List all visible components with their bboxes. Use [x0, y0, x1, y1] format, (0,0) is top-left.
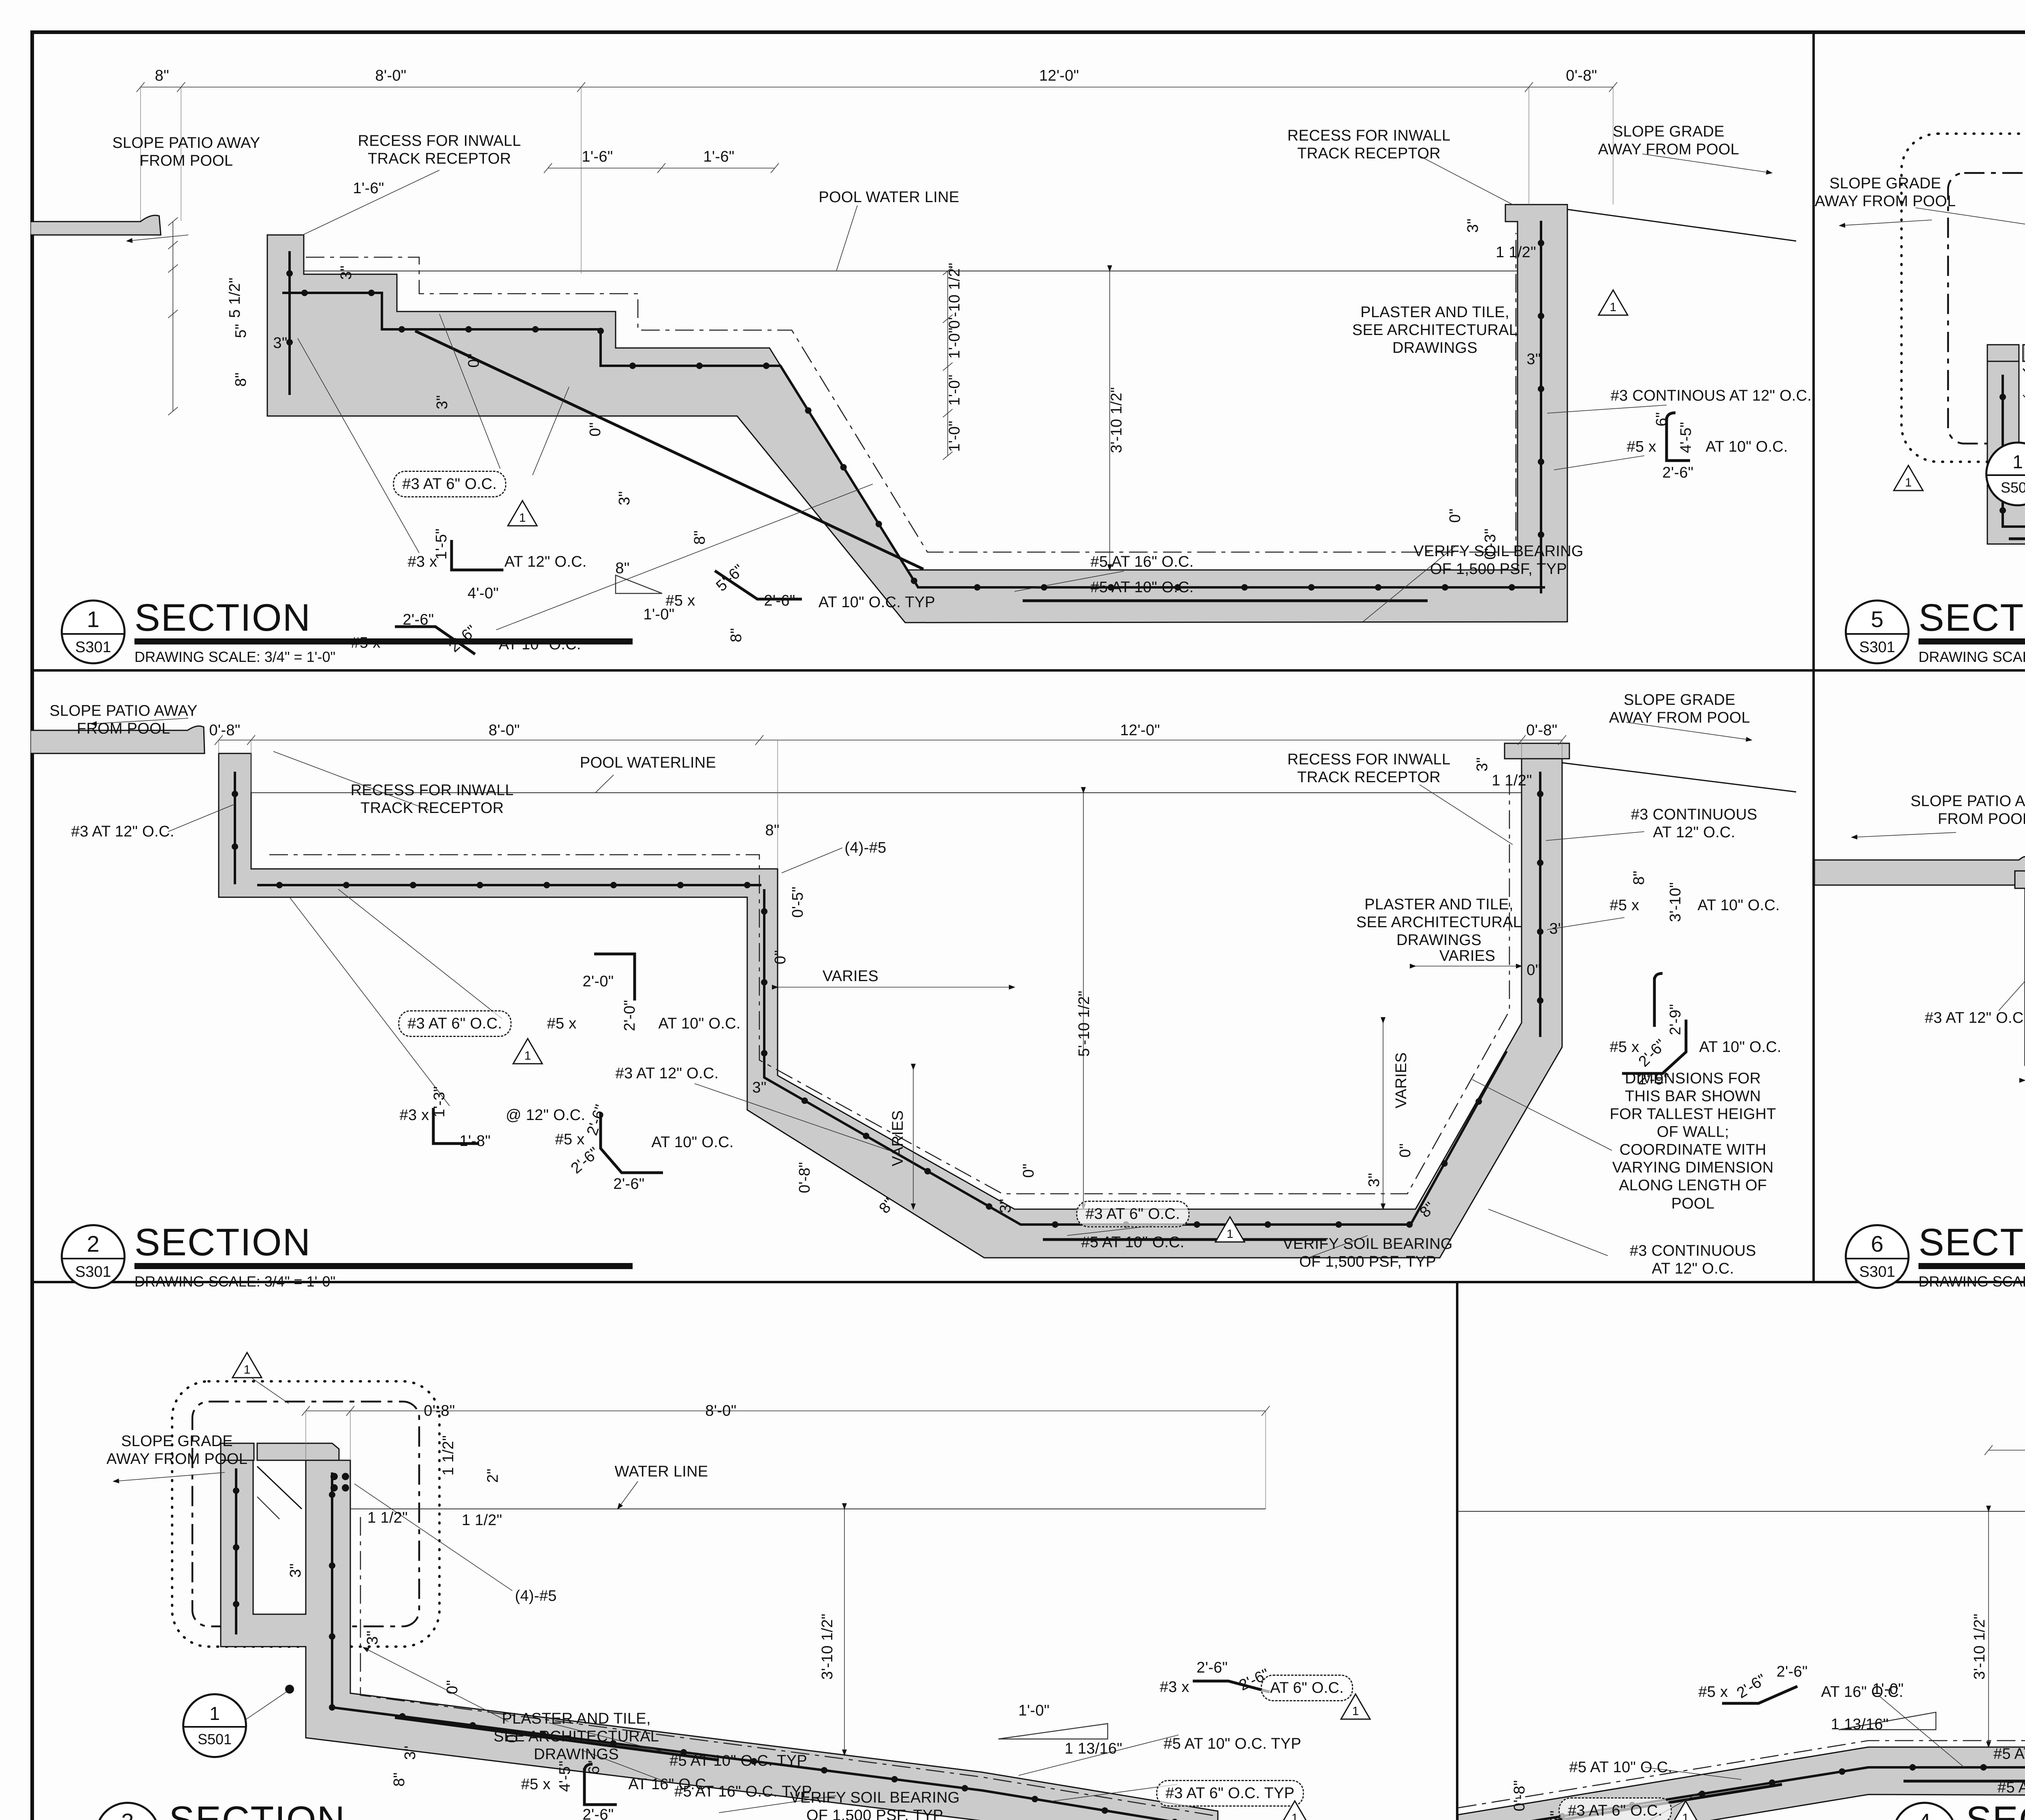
- svg-text:1: 1: [524, 1049, 531, 1063]
- section-scale: DRAWING SCALE: 3/4" = 1'-0": [1918, 1273, 2025, 1290]
- annotation-label: 8": [727, 628, 745, 642]
- annotation-label: 1 1/2": [1496, 243, 1536, 261]
- svg-text:1: 1: [1227, 1227, 1234, 1241]
- annotation-label: 4'-5": [556, 1760, 574, 1792]
- section-5-panel: SLOPE GRADE AWAY FROM POOLPLASTER AND TI…: [1814, 30, 2025, 670]
- annotation-label: 0'-3": [1481, 528, 1499, 559]
- annotation-label: 3": [616, 491, 633, 505]
- annotation-label: (4)-#5: [844, 839, 886, 857]
- annotation-label: 0'-8": [1526, 721, 1557, 739]
- section-title-text: SECTION: [1966, 1799, 2025, 1820]
- annotation-label: 3'-10": [1667, 882, 1684, 922]
- detail-callout: 1S501: [182, 1693, 247, 1758]
- annotation-label: 2'-6": [1196, 1659, 1228, 1677]
- svg-text:1: 1: [1682, 1811, 1689, 1820]
- annotation-label: 0": [1396, 1143, 1414, 1157]
- revision-triangle: 1: [1339, 1692, 1372, 1721]
- annotation-label: AT 10" O.C. TYP: [819, 593, 935, 611]
- annotation-label: #5 AT 10" O.C.: [1569, 1758, 1673, 1776]
- section-1-panel: SLOPE PATIO AWAY FROM POOLRECESS FOR INW…: [30, 30, 1796, 670]
- annotation-label: VARIES: [1392, 1052, 1410, 1108]
- annotation-label: POOL WATERLINE: [580, 754, 716, 772]
- annotation-label: AT 12" O.C.: [504, 553, 586, 571]
- svg-text:1: 1: [1292, 1811, 1298, 1820]
- annotation-label: #5 AT 10" O.C.: [1091, 578, 1194, 596]
- revision-triangle: 1: [231, 1351, 263, 1379]
- annotation-label: 2'-6": [567, 1144, 603, 1177]
- section-number: 1: [87, 608, 99, 631]
- annotation-label: #3 CONTINUOUS AT 12" O.C.: [1631, 806, 1757, 841]
- annotation-label: 1 1/2": [1492, 772, 1532, 789]
- annotation-label: 8": [765, 821, 779, 839]
- section-3-panel: SLOPE GRADE AWAY FROM POOL0'-8"8'-0"1 1/…: [30, 1282, 1458, 1820]
- annotation-label: 1 1/2": [439, 1435, 457, 1476]
- section-scale: DRAWING SCALE: 3/4" = 1'-0": [1918, 649, 2025, 666]
- annotation-label: RECESS FOR INWALL TRACK RECEPTOR: [1287, 751, 1451, 786]
- annotation-label: 8": [1416, 1199, 1439, 1221]
- annotation-label: #3 AT 12" O.C.: [1925, 1009, 2025, 1027]
- annotation-label: 0'-5": [789, 886, 807, 917]
- section-title-text: SECTION: [134, 1221, 311, 1264]
- svg-text:1: 1: [244, 1363, 251, 1376]
- annotation-label: 12'-0": [1039, 67, 1079, 85]
- annotation-label: 5 1/2": [226, 277, 244, 318]
- section-1-annotations: SLOPE PATIO AWAY FROM POOLRECESS FOR INW…: [30, 30, 1796, 670]
- annotation-label: RECESS FOR INWALL TRACK RECEPTOR: [351, 781, 514, 817]
- section-title-text: SECTION: [1918, 596, 2025, 639]
- annotation-label: VARIES: [1439, 947, 1495, 965]
- annotation-label: 3'-10 1/2": [1971, 1613, 1989, 1679]
- annotation-label: 2'-6": [764, 592, 795, 610]
- annotation-label: 12'-0": [1120, 721, 1160, 739]
- annotation-label: #3 x: [399, 1106, 429, 1124]
- annotation-label: 1'-0": [946, 327, 963, 358]
- annotation-label: #3 AT 6" O.C.: [1558, 1797, 1672, 1820]
- section-sheet: S301: [1859, 639, 1895, 656]
- section-4-titlebar: 4S301 SECTIONDRAWING SCALE: 3/4" = 1'-0": [1892, 1802, 2025, 1820]
- revision-triangle: 1: [512, 1037, 544, 1065]
- annotation-label: VARIES: [823, 967, 878, 985]
- section-title-text: SECTION: [169, 1799, 345, 1820]
- annotation-label: 3": [1526, 350, 1541, 368]
- annotation-label: 3'-10 1/2": [1108, 387, 1125, 453]
- annotation-label: VERIFY SOIL BEARING OF 1,500 PSF, TYP: [790, 1789, 960, 1820]
- annotation-label: 1'-8": [459, 1132, 490, 1150]
- annotation-label: 5'-6": [713, 561, 748, 595]
- annotation-label: 0'-8": [1566, 67, 1597, 85]
- annotation-label: PLASTER AND TILE, SEE ARCHITECTURAL DRAW…: [1356, 896, 1522, 949]
- annotation-label: 8": [1630, 871, 1648, 885]
- annotation-label: #3 AT 6" O.C.: [393, 471, 506, 497]
- annotation-label: #3 AT 6" O.C.: [1076, 1201, 1189, 1227]
- section-number: 5: [1871, 608, 1883, 631]
- annotation-label: AT 10" O.C.: [1705, 438, 1788, 456]
- svg-text:1: 1: [1352, 1705, 1359, 1718]
- annotation-label: 6": [1653, 412, 1671, 426]
- annotation-label: 1'-0": [1018, 1702, 1049, 1720]
- annotation-label: #3 AT 12" O.C.: [71, 823, 175, 841]
- annotation-label: 4'-5": [1677, 422, 1695, 453]
- annotation-label: SLOPE GRADE AWAY FROM POOL: [1598, 123, 1739, 158]
- annotation-label: #5 x: [1698, 1683, 1728, 1701]
- annotation-label: 3": [1365, 1173, 1383, 1187]
- drawing-sheet: SLOPE PATIO AWAY FROM POOLRECESS FOR INW…: [0, 0, 2025, 1820]
- annotation-label: 5'-10 1/2": [1075, 990, 1093, 1056]
- svg-text:1: 1: [1610, 301, 1617, 314]
- section-5-annotations: SLOPE GRADE AWAY FROM POOLPLASTER AND TI…: [1814, 30, 2025, 670]
- annotation-label: 1 13/16": [1065, 1740, 1123, 1758]
- annotation-label: #3 AT 6" O.C.: [398, 1010, 512, 1037]
- annotation-label: SLOPE GRADE AWAY FROM POOL: [1609, 691, 1750, 727]
- annotation-label: SLOPE GRADE AWAY FROM POOL: [1815, 175, 1956, 210]
- revision-triangle: 1: [1214, 1215, 1246, 1244]
- annotation-label: SLOPE PATIO AWAY FROM POOL: [112, 134, 260, 170]
- annotation-label: 2'-0": [582, 973, 614, 990]
- annotation-label: 0'-10 1/2": [946, 262, 963, 329]
- annotation-label: 2'-6": [1734, 1671, 1770, 1702]
- annotation-label: 1'-6": [582, 148, 613, 166]
- annotation-label: 3": [1549, 920, 1563, 938]
- annotation-label: #5 AT 16" O.C.: [1091, 553, 1194, 571]
- annotation-label: #5 AT 16" O.C. TYP: [1997, 1779, 2025, 1797]
- annotation-label: 3": [1473, 757, 1491, 771]
- annotation-label: 1'-6": [703, 148, 734, 166]
- section-sheet: S301: [75, 639, 111, 656]
- section-6-titlebar: 6S301 SECTIONDRAWING SCALE: 3/4" = 1'-0": [1845, 1224, 2025, 1290]
- annotation-label: 0": [586, 422, 604, 436]
- annotation-label: #5 x: [521, 1775, 550, 1793]
- annotation-label: #5 AT 10" O.C. TYP: [1164, 1735, 1301, 1753]
- annotation-label: 2'-6": [583, 1102, 610, 1137]
- annotation-label: 3": [337, 265, 355, 280]
- annotation-label: 0": [503, 1728, 521, 1743]
- annotation-label: 8": [390, 1772, 408, 1786]
- annotation-label: #5 x: [1626, 438, 1656, 456]
- section-number: 2: [87, 1233, 99, 1255]
- annotation-label: 3": [273, 334, 287, 352]
- annotation-label: AT 10" O.C.: [651, 1133, 733, 1151]
- annotation-label: 1'-5": [433, 528, 450, 559]
- annotation-label: 1'-0": [946, 374, 963, 405]
- annotation-label: #3 CONTINUOUS AT 12" O.C.: [1630, 1242, 1756, 1278]
- annotation-label: #5 AT 10" O.C. TYP: [669, 1752, 807, 1770]
- annotation-label: 8": [691, 530, 709, 544]
- annotation-label: POOL WATER LINE: [819, 188, 959, 206]
- annotation-label: #3 AT 12" O.C.: [616, 1065, 719, 1082]
- annotation-label: 1 13/16": [1831, 1715, 1889, 1733]
- section-title-text: SECTION: [1918, 1221, 2025, 1264]
- annotation-label: 2'-6": [1776, 1663, 1808, 1681]
- annotation-label: 3": [1547, 1810, 1565, 1820]
- annotation-label: 1'-0": [946, 420, 963, 452]
- annotation-label: 2'-6": [1635, 1036, 1670, 1071]
- section-2-titlebar: 2S301 SECTIONDRAWING SCALE: 3/4" = 1'-0": [61, 1224, 633, 1290]
- section-2-annotations: SLOPE PATIO AWAY FROM POOL0'-8"8'-0"12'-…: [30, 670, 1796, 1282]
- annotation-label: SLOPE PATIO AWAY FROM POOL: [1910, 792, 2025, 828]
- annotation-label: 3": [752, 1079, 766, 1097]
- annotation-label: 6": [585, 1760, 603, 1774]
- annotation-label: 2'-6": [1662, 464, 1693, 482]
- annotation-label: 1'-3": [431, 1086, 448, 1117]
- section-sheet: S301: [1859, 1263, 1895, 1281]
- annotation-label: 0'-8": [1511, 1780, 1528, 1811]
- annotation-label: SLOPE GRADE AWAY FROM POOL: [107, 1432, 247, 1468]
- annotation-label: 1 1/2": [462, 1511, 502, 1529]
- annotation-label: RECESS FOR INWALL TRACK RECEPTOR: [1287, 127, 1451, 162]
- annotation-label: 5": [232, 324, 250, 338]
- section-3-titlebar: 3S301 SECTIONDRAWING SCALE: 3/4" = 1'-0": [95, 1802, 667, 1820]
- annotation-label: 8": [155, 67, 169, 85]
- annotation-label: 2": [484, 1468, 502, 1483]
- annotation-label: 0'-8": [424, 1402, 455, 1420]
- svg-text:1: 1: [519, 511, 526, 525]
- revision-triangle: 1: [1597, 288, 1629, 317]
- revision-triangle: 1: [506, 499, 539, 527]
- annotation-label: 1'-0": [1872, 1680, 1904, 1698]
- section-4-panel: #5 x2'-6"2'-6"AT 16" O.C.#5 AT 10" O.C.#…: [1458, 1282, 2025, 1820]
- section-title-text: SECTION: [134, 596, 311, 639]
- section-number: 6: [1871, 1233, 1883, 1255]
- annotation-label: 1 1/2": [367, 1509, 408, 1527]
- annotation-label: #5 x: [555, 1131, 584, 1148]
- annotation-label: 0": [465, 353, 483, 367]
- section-6-annotations: SLOPE PATIO AWAY FROM POOLPOOL WATERLINE…: [1814, 670, 2025, 1282]
- annotation-label: 3": [364, 1630, 382, 1645]
- revision-triangle: 1: [1279, 1799, 1311, 1820]
- annotation-label: #5 x: [1609, 1038, 1639, 1056]
- annotation-label: WATER LINE: [614, 1463, 708, 1481]
- section-4-annotations: #5 x2'-6"2'-6"AT 16" O.C.#5 AT 10" O.C.#…: [1458, 1282, 2025, 1820]
- annotation-label: 3": [997, 1199, 1015, 1213]
- annotation-label: #3 x: [1160, 1678, 1189, 1696]
- section-1-callout: 1 S301: [61, 600, 126, 664]
- annotation-label: 3": [287, 1563, 305, 1577]
- section-1-titlebar: 1 S301 SECTION DRAWING SCALE: 3/4" = 1'-…: [61, 600, 633, 666]
- annotation-label: VARIES: [889, 1110, 907, 1166]
- annotation-label: VERIFY SOIL BEARING OF 1,500 PSF, TYP: [1283, 1235, 1453, 1271]
- section-5-titlebar: 5S301 SECTIONDRAWING SCALE: 3/4" = 1'-0": [1845, 600, 2025, 666]
- section-6-panel: SLOPE PATIO AWAY FROM POOLPOOL WATERLINE…: [1814, 670, 2025, 1282]
- annotation-label: @ 12" O.C.: [506, 1106, 586, 1124]
- annotation-label: 3": [401, 1745, 419, 1760]
- annotation-label: AT 10" O.C.: [658, 1015, 740, 1033]
- annotation-label: 2'-0": [621, 1000, 639, 1031]
- annotation-label: #5 x: [665, 592, 695, 610]
- annotation-label: 2'-9": [1667, 1004, 1684, 1035]
- annotation-label: 8": [615, 559, 629, 577]
- annotation-label: 0": [1446, 508, 1464, 523]
- section-scale: DRAWING SCALE: 3/4" = 1'-0": [134, 649, 633, 666]
- annotation-label: AT 10" O.C.: [1697, 896, 1780, 914]
- section-number: 3: [121, 1810, 134, 1820]
- annotation-label: 2'-6": [613, 1175, 644, 1193]
- annotation-label: 1'-6": [353, 179, 384, 197]
- annotation-label: 0": [1526, 961, 1541, 979]
- annotation-label: #5 x: [1609, 896, 1639, 914]
- annotation-label: AT 16" O.C.: [628, 1775, 710, 1793]
- annotation-label: 8'-0": [705, 1402, 736, 1420]
- annotation-label: 3'-10 1/2": [819, 1613, 836, 1679]
- annotation-label: 8": [876, 1195, 898, 1217]
- annotation-label: 0'-8": [796, 1162, 814, 1193]
- annotation-label: RECESS FOR INWALL TRACK RECEPTOR: [358, 132, 521, 168]
- section-number: 4: [1918, 1810, 1931, 1820]
- revision-triangle: 1: [1669, 1799, 1702, 1820]
- annotation-label: 8'-0": [488, 721, 520, 739]
- revision-triangle: 1: [1892, 464, 1925, 492]
- annotation-label: 3": [1464, 218, 1482, 233]
- annotation-label: AT 10" O.C.: [1699, 1038, 1781, 1056]
- annotation-label: PLASTER AND TILE, SEE ARCHITECTURAL DRAW…: [1352, 303, 1518, 357]
- section-scale: DRAWING SCALE: 3/4" = 1'-0": [134, 1273, 633, 1290]
- annotation-label: 8": [232, 372, 250, 386]
- annotation-label: #3 CONTINOUS AT 12" O.C.: [1611, 387, 1812, 405]
- annotation-label: 0": [443, 1680, 461, 1694]
- annotation-label: 8'-0": [375, 67, 406, 85]
- svg-text:1: 1: [1905, 476, 1912, 489]
- annotation-label: #5 AT 10" O.C.: [1081, 1233, 1185, 1251]
- annotation-label: #5 x: [547, 1015, 576, 1033]
- section-sheet: S301: [75, 1263, 111, 1281]
- section-3-annotations: SLOPE GRADE AWAY FROM POOL0'-8"8'-0"1 1/…: [30, 1282, 1458, 1820]
- annotation-label: SLOPE PATIO AWAY FROM POOL: [49, 702, 197, 738]
- detail-callout: 1S501: [1985, 442, 2025, 506]
- annotation-label: (4)-#5: [515, 1587, 556, 1605]
- annotation-label: 0'-8": [209, 721, 240, 739]
- annotation-label: 0": [772, 950, 789, 964]
- annotation-label: 3": [433, 395, 451, 409]
- annotation-label: DIMENSIONS FOR THIS BAR SHOWN FOR TALLES…: [1610, 1070, 1776, 1213]
- section-2-panel: SLOPE PATIO AWAY FROM POOL0'-8"8'-0"12'-…: [30, 670, 1796, 1282]
- annotation-label: 0": [1020, 1163, 1038, 1178]
- annotation-label: #5 AT 10" O.C. TYP: [1993, 1745, 2025, 1763]
